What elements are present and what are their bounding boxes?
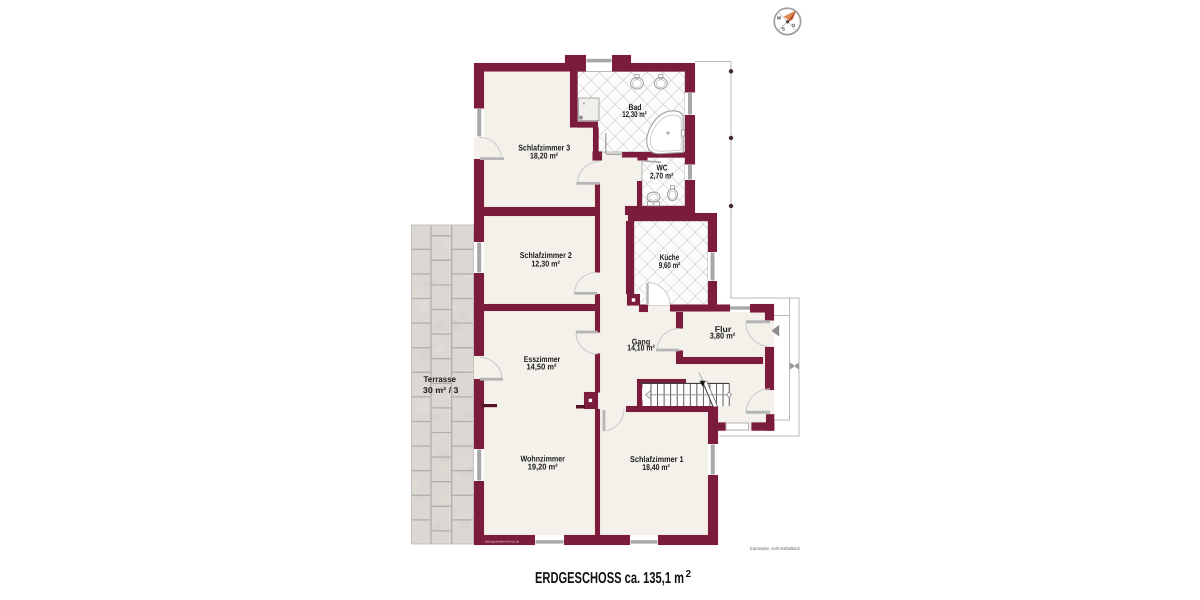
svg-text:19,20 m²: 19,20 m² [528,462,558,472]
svg-text:2,70 m²: 2,70 m² [650,171,674,181]
svg-text:14,10 m²: 14,10 m² [627,343,655,353]
svg-text:30 m² / 3: 30 m² / 3 [423,385,459,395]
svg-text:12,30 m²: 12,30 m² [622,109,647,119]
svg-text:ERDGESCHOSS ca. 135,1 m: ERDGESCHOSS ca. 135,1 m [535,570,684,587]
svg-text:O: O [792,23,796,28]
svg-text:18,20 m²: 18,20 m² [530,151,558,161]
svg-text:Exposéplan, nicht maßstäblich: Exposéplan, nicht maßstäblich [750,546,800,551]
svg-text:S: S [782,27,785,32]
svg-text:3,80 m²: 3,80 m² [710,331,736,341]
svg-text:12,30 m²: 12,30 m² [531,258,560,268]
svg-text:9,60 m²: 9,60 m² [659,260,681,270]
svg-text:18,40 m²: 18,40 m² [642,462,670,472]
svg-text:www.grundriss-service.de: www.grundriss-service.de [485,539,520,543]
svg-text:Terrasse: Terrasse [424,374,457,384]
svg-text:W: W [777,15,782,20]
svg-text:14,50 m²: 14,50 m² [527,362,557,372]
svg-text:2: 2 [686,569,692,580]
